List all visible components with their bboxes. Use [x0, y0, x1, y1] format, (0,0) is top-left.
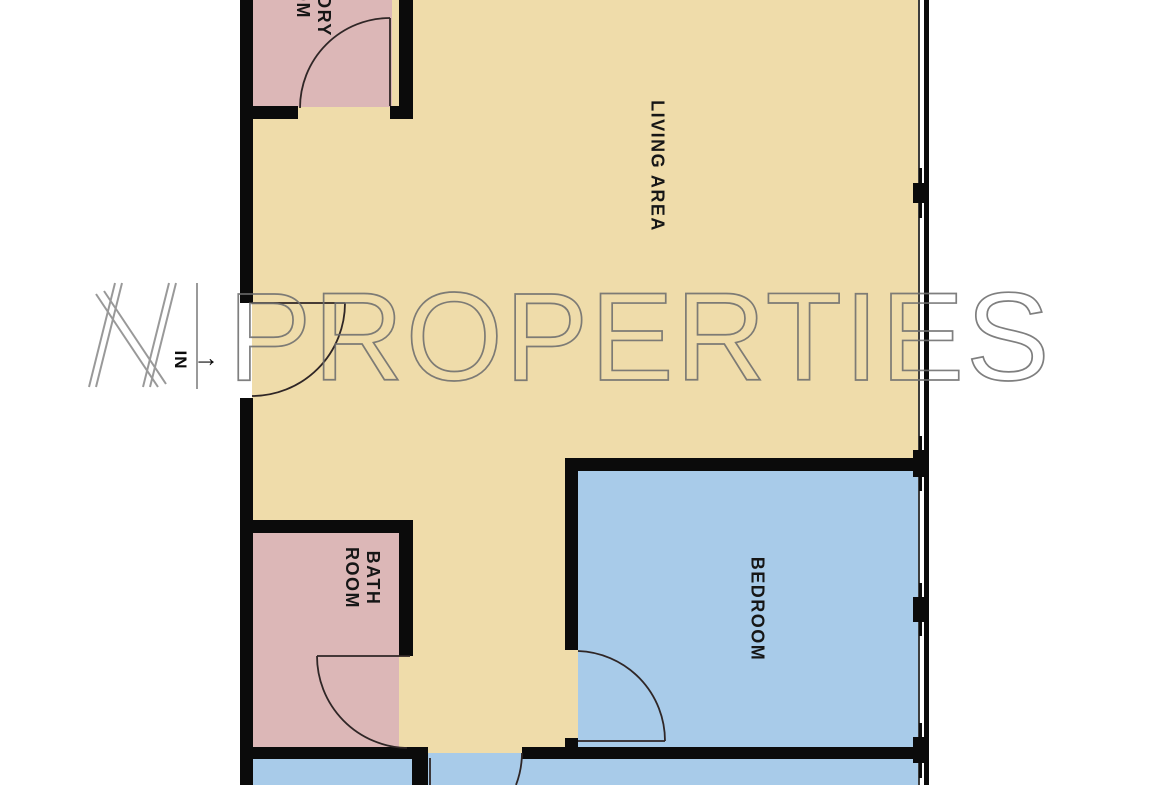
watermark-layer: PROPERTIES — [0, 0, 1170, 785]
watermark-n-logo-icon — [89, 283, 176, 387]
floor-plan-canvas: LIVING AREA BEDROOM BATH ROOM LAUNDRY RO… — [0, 0, 1170, 785]
watermark-brand-name: PROPERTIES — [228, 268, 1051, 407]
